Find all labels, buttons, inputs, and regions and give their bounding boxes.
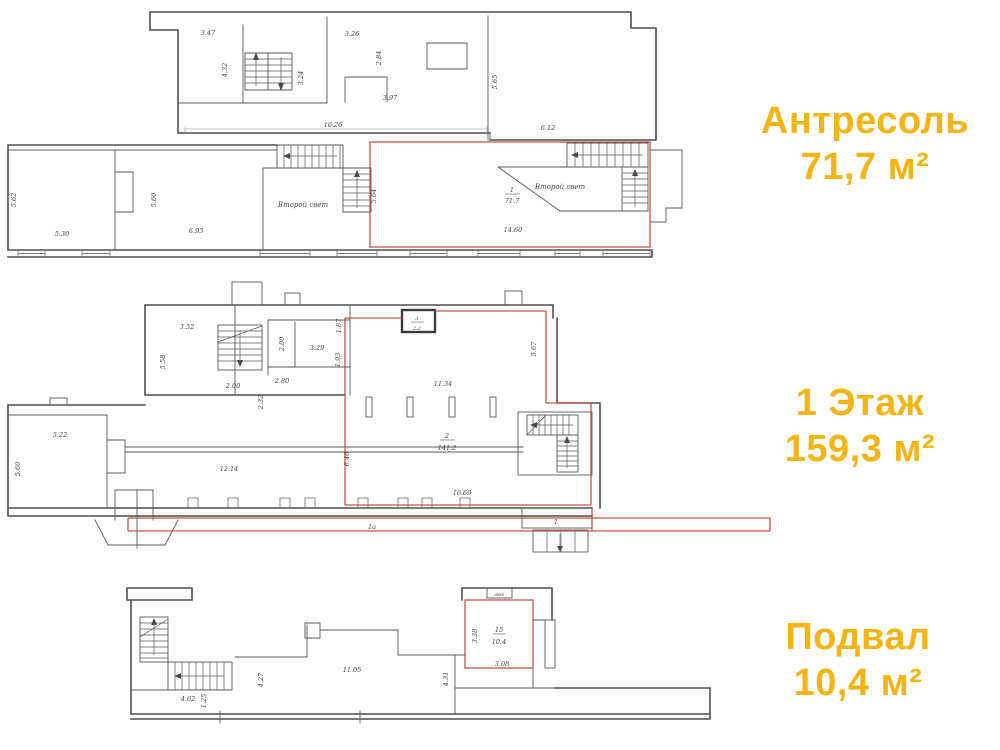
floor1-interior-walls — [8, 305, 523, 548]
svg-text:5.58: 5.58 — [159, 355, 167, 369]
svg-text:2.80: 2.80 — [274, 377, 289, 385]
svg-text:3.29: 3.29 — [310, 344, 324, 352]
svg-text:5.22: 5.22 — [53, 431, 67, 439]
svg-text:71.7: 71.7 — [505, 197, 520, 205]
svg-text:5.30: 5.30 — [55, 230, 69, 238]
svg-text:2: 2 — [444, 432, 449, 440]
svg-text:2.80: 2.80 — [278, 337, 286, 352]
mezzanine-stairs-upper-wing — [245, 52, 292, 91]
basement-column — [545, 620, 555, 668]
basement-outer-walls — [127, 588, 710, 719]
svg-text:15: 15 — [495, 626, 503, 634]
svg-text:4.62: 4.62 — [180, 695, 195, 703]
svg-text:2.84: 2.84 — [375, 51, 383, 66]
floor1-outer-walls — [8, 305, 600, 516]
svg-text:4.31: 4.31 — [442, 672, 450, 687]
svg-text:1.93: 1.93 — [334, 353, 342, 367]
floor1-window-pilasters — [188, 498, 470, 508]
mezzanine-windows — [18, 250, 650, 257]
svg-text:1.25: 1.25 — [200, 694, 208, 708]
svg-text:4.27: 4.27 — [257, 672, 265, 688]
svg-text:5.62: 5.62 — [10, 193, 18, 207]
basement-stairs — [140, 617, 232, 690]
svg-text:3.08: 3.08 — [495, 660, 509, 668]
floor1-label-title: 1 Этаж — [796, 382, 924, 424]
basement-interior-walls — [131, 600, 555, 723]
svg-text:11.34: 11.34 — [434, 380, 453, 388]
floor1-highlight-outline — [128, 311, 770, 531]
mezzanine-label-area: 71,7 м² — [735, 144, 995, 190]
svg-text:1а: 1а — [368, 523, 376, 531]
floor1-area-label: 1 Этаж 159,3 м² — [730, 380, 990, 472]
svg-text:14.60: 14.60 — [504, 226, 523, 234]
floor1-vestibule — [522, 508, 592, 552]
svg-text:6.93: 6.93 — [189, 227, 203, 235]
basement-dimensions: 4.62 1.25 4.27 11.05 4.31 3.38 15 10.4 3… — [180, 592, 509, 708]
svg-text:3.47: 3.47 — [201, 29, 216, 37]
svg-text:3.38: 3.38 — [471, 629, 479, 643]
svg-text:Второй свет: Второй свет — [277, 201, 329, 209]
basement-label-area: 10,4 м² — [728, 660, 988, 706]
mezzanine-stairs-red-room — [567, 143, 648, 211]
floor1-columns — [366, 397, 496, 417]
svg-text:16.69: 16.69 — [453, 489, 472, 497]
svg-text:5.64: 5.64 — [370, 189, 378, 203]
floor-plans-page: 3.47 4.32 3.24 3.26 2.84 3.97 16.26 5.65… — [0, 0, 1000, 750]
floor1-dimensions: 3.52 5.58 2.00 2.80 1.87 3.29 1.93 2.80 … — [14, 316, 558, 531]
svg-text:2.32: 2.32 — [257, 395, 265, 410]
svg-text:5.60: 5.60 — [14, 462, 22, 476]
svg-text:6.12: 6.12 — [541, 124, 555, 132]
svg-text:11.05: 11.05 — [343, 666, 362, 674]
svg-text:1.87: 1.87 — [335, 318, 343, 333]
mezzanine-outer-walls — [8, 12, 656, 257]
first-floor-plan: 3.52 5.58 2.00 2.80 1.87 3.29 1.93 2.80 … — [0, 280, 800, 565]
svg-text:3.52: 3.52 — [180, 323, 194, 331]
svg-text:10.4: 10.4 — [492, 638, 506, 646]
basement-area-label: Подвал 10,4 м² — [728, 614, 988, 706]
svg-text:люк: люк — [494, 592, 505, 598]
svg-text:5.60: 5.60 — [150, 193, 158, 207]
floor1-label-area: 159,3 м² — [730, 426, 990, 472]
svg-text:4.32: 4.32 — [221, 63, 229, 78]
svg-text:12.14: 12.14 — [220, 465, 239, 473]
mezzanine-area-label: Антресоль 71,7 м² — [735, 98, 995, 190]
svg-text:3.26: 3.26 — [345, 30, 359, 38]
svg-text:3.24: 3.24 — [297, 71, 305, 85]
svg-text:3: 3 — [415, 316, 418, 322]
mezzanine-floor-plan: 3.47 4.32 3.24 3.26 2.84 3.97 16.26 5.65… — [0, 8, 690, 266]
svg-text:5.67: 5.67 — [530, 341, 538, 356]
svg-text:3.97: 3.97 — [383, 94, 398, 102]
basement-floor-plan: 4.62 1.25 4.27 11.05 4.31 3.38 15 10.4 3… — [120, 585, 720, 730]
mezzanine-label-title: Антресоль — [761, 100, 969, 142]
svg-text:2.00: 2.00 — [225, 382, 240, 390]
svg-text:1: 1 — [554, 518, 558, 526]
floor1-stairs-upper — [218, 325, 262, 370]
svg-text:6.46: 6.46 — [343, 452, 351, 466]
svg-text:16.26: 16.26 — [324, 121, 343, 129]
svg-text:1: 1 — [510, 186, 514, 194]
svg-text:Второй свет: Второй свет — [534, 183, 586, 191]
svg-text:5.65: 5.65 — [491, 75, 499, 89]
floor1-stairs — [518, 412, 592, 475]
svg-text:141.2: 141.2 — [438, 444, 457, 452]
svg-text:2.2: 2.2 — [412, 326, 421, 332]
basement-label-title: Подвал — [785, 616, 930, 658]
